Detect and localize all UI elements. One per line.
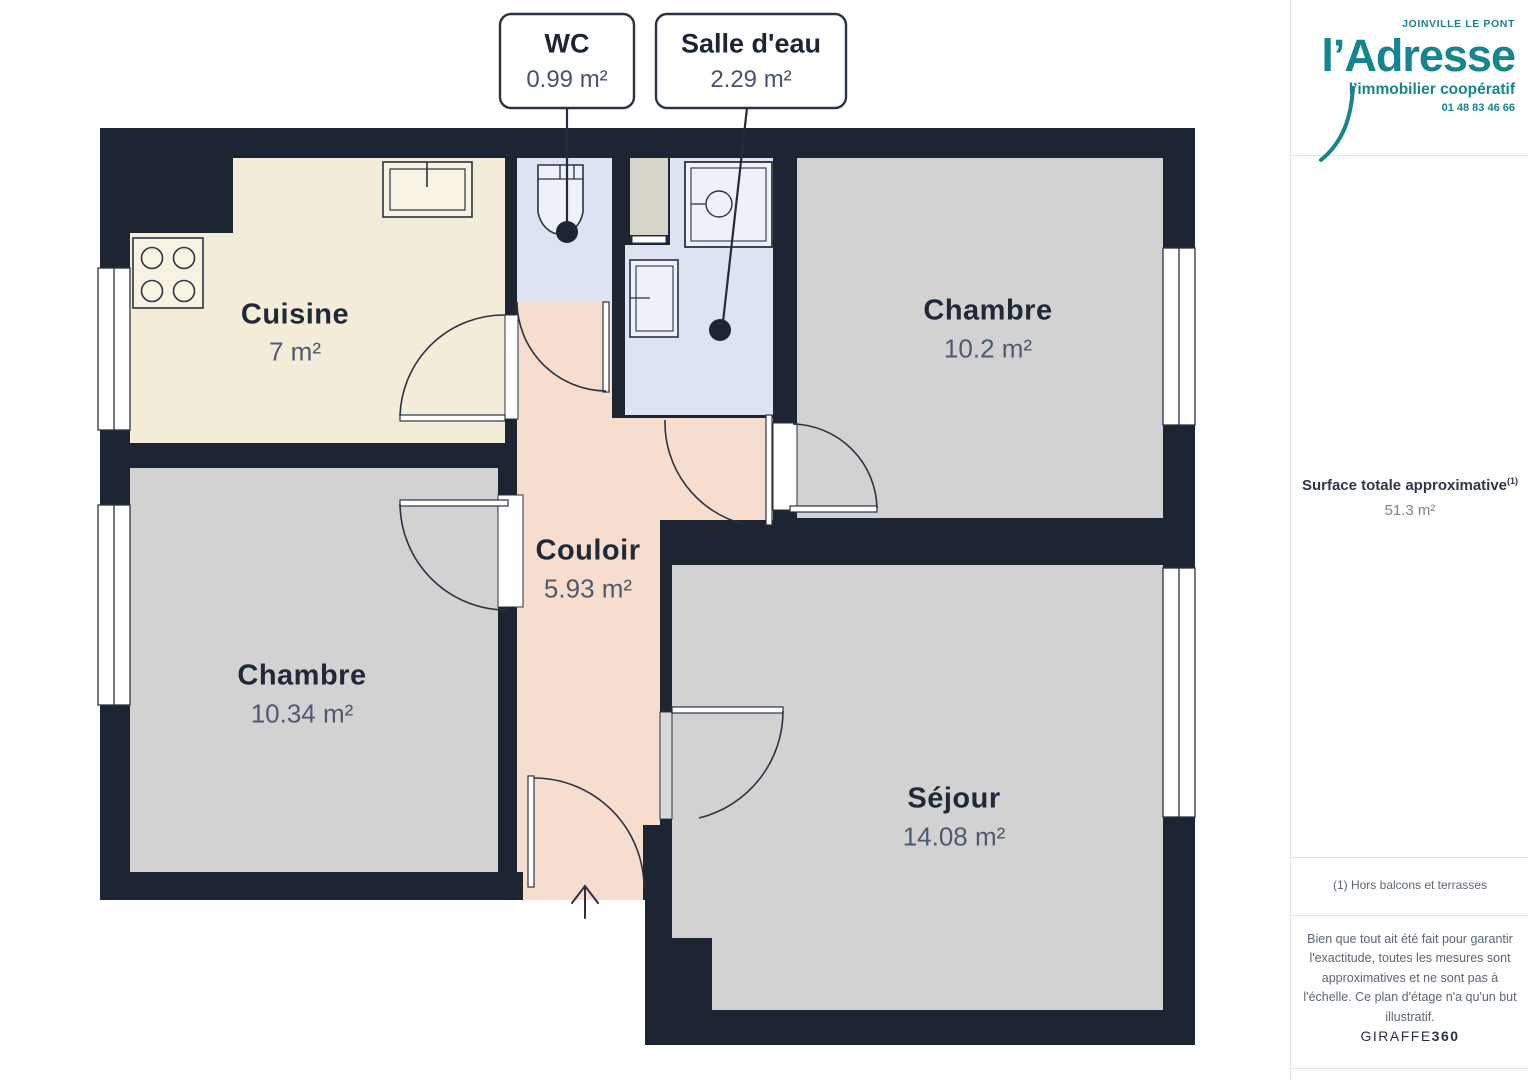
kitchen-sink bbox=[383, 162, 472, 217]
window-bedroom2 bbox=[98, 505, 130, 705]
sidebar-divider-2 bbox=[1291, 857, 1528, 858]
window-livingroom bbox=[1163, 568, 1195, 817]
sidebar: JOINVILLE LE PONT l’Adresse l’immobilier… bbox=[1290, 0, 1528, 1080]
bathroom-callout-box bbox=[656, 14, 846, 108]
giraffe360-watermark: GIRAFFE360 bbox=[1291, 1028, 1528, 1044]
shaft-vent bbox=[632, 236, 666, 243]
wc-callout-box bbox=[500, 14, 634, 108]
watermark-suffix: 360 bbox=[1432, 1028, 1460, 1044]
surface-value: 51.3 m² bbox=[1291, 502, 1528, 519]
bathroom-leader-dot bbox=[709, 319, 731, 341]
surface-title: Surface totale approximative(1) bbox=[1291, 476, 1528, 494]
surface-footnote-ref: (1) bbox=[1507, 476, 1518, 486]
surface-summary: Surface totale approximative(1) 51.3 m² bbox=[1291, 476, 1528, 519]
logo-swoosh-icon bbox=[1319, 80, 1389, 170]
bedroom2-floor bbox=[130, 468, 498, 872]
stove bbox=[133, 238, 203, 308]
agency-name: l’Adresse bbox=[1291, 32, 1515, 79]
duct-shaft bbox=[630, 158, 668, 235]
sidebar-divider-3 bbox=[1291, 915, 1528, 916]
bedroom1-floor bbox=[797, 158, 1163, 518]
agency-location: JOINVILLE LE PONT bbox=[1291, 18, 1515, 30]
disclaimer: Bien que tout ait été fait pour garantir… bbox=[1299, 930, 1521, 1027]
window-bedroom1 bbox=[1163, 248, 1195, 425]
footnote: (1) Hors balcons et terrasses bbox=[1291, 878, 1528, 892]
watermark-brand: GIRAFFE bbox=[1360, 1028, 1431, 1044]
washbasin bbox=[630, 260, 678, 337]
shower bbox=[685, 162, 772, 247]
livingroom-floor bbox=[672, 565, 1163, 1010]
sidebar-divider-4 bbox=[1291, 1068, 1528, 1069]
floorplan-page: WC 0.99 m² Salle d'eau 2.29 m² Cuisine 7… bbox=[0, 0, 1528, 1080]
window-kitchen bbox=[98, 268, 130, 430]
wc-leader-dot bbox=[556, 221, 578, 243]
surface-title-text: Surface totale approximative bbox=[1302, 477, 1507, 494]
